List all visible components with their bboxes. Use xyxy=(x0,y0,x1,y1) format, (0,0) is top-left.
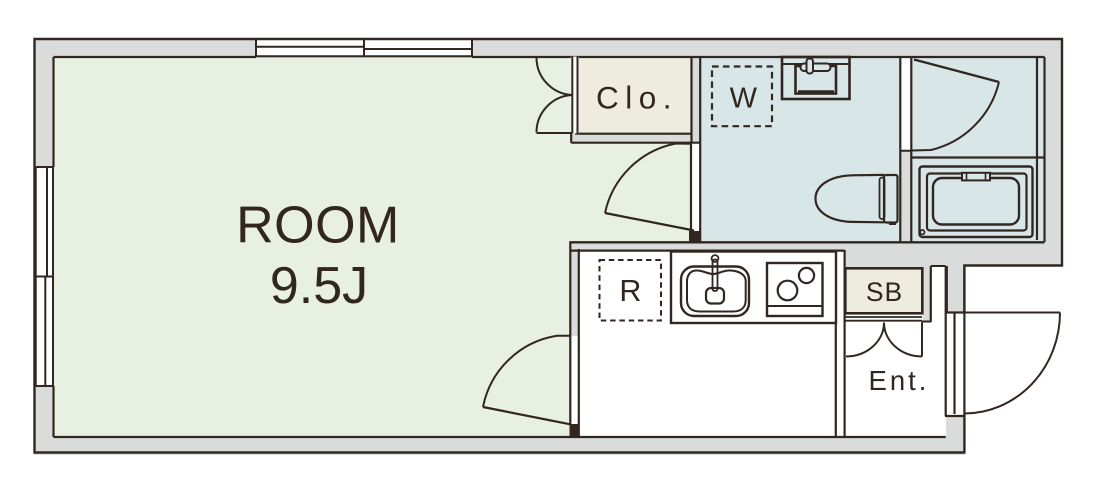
svg-text:SB: SB xyxy=(866,277,903,307)
svg-text:R: R xyxy=(619,274,641,308)
svg-text:Ent.: Ent. xyxy=(869,365,930,396)
svg-text:Clo.: Clo. xyxy=(596,80,678,116)
svg-text:9.5J: 9.5J xyxy=(270,257,368,315)
svg-text:ROOM: ROOM xyxy=(236,197,400,255)
svg-text:W: W xyxy=(730,83,758,115)
